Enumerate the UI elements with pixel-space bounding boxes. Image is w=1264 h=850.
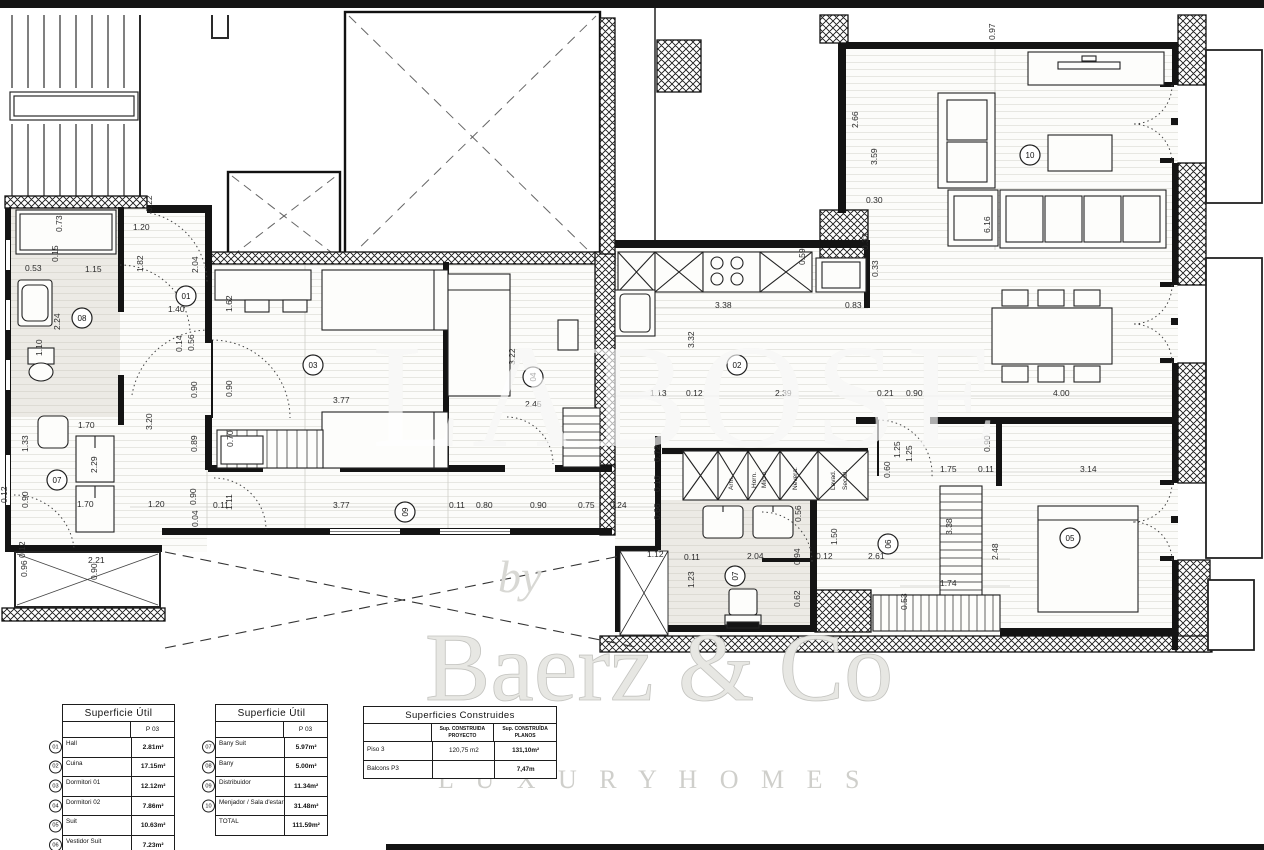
- dimension-label: 0.12: [17, 541, 27, 558]
- table-row: 08Bany5.00m²: [216, 758, 327, 778]
- dimension-label: 1.20: [133, 222, 150, 232]
- watermark-by: by: [498, 551, 542, 602]
- row-name: Distribuidor: [216, 777, 285, 796]
- row-name: Bany: [216, 758, 285, 777]
- dimension-label: 0.11: [449, 500, 465, 510]
- col-header-planos: Sup. CONSTRUÏDAPLANOS: [494, 724, 556, 741]
- room-number-05: 05: [1060, 528, 1080, 548]
- row-name: Hall: [63, 738, 132, 757]
- row-name: Dormitori 02: [63, 797, 132, 816]
- dimension-label: 0.15: [50, 245, 60, 262]
- room-number-label: 03: [309, 361, 318, 370]
- table-row: 07Bany Suit5.97m²: [216, 738, 327, 758]
- row-value: 7.23m²: [132, 836, 174, 850]
- row-name: Menjador / Sala d'estar: [216, 797, 285, 816]
- row-value-planos: 131,10m²: [495, 742, 556, 760]
- dimension-label: 0.66: [652, 503, 662, 520]
- table-row: TOTAL111.59m²: [216, 816, 327, 835]
- col-header-proyecto: Sup. CONSTRUIDAPROYECTO: [432, 724, 495, 741]
- row-value: 5.00m²: [285, 758, 327, 777]
- dimension-label: 0.53: [25, 263, 42, 273]
- table-row: Balcons P37,47m: [364, 761, 556, 779]
- room-number-01: 01: [176, 286, 196, 306]
- dimension-label: 0.89: [189, 435, 199, 452]
- floorplan-drawing: LABOSE: [0, 0, 1264, 850]
- table-row: 01Hall2.81m²: [63, 738, 174, 758]
- table-row: Piso 3120,75 m2131,10m²: [364, 742, 556, 761]
- row-name: Vestidor Suit: [63, 836, 132, 850]
- table-row: 03Dormitori 0112.12m²: [63, 777, 174, 797]
- table-row: 04Dormitori 027.86m²: [63, 797, 174, 817]
- room-number-label: 05: [1066, 534, 1075, 543]
- dimension-label: 0.83: [845, 300, 862, 310]
- dimension-label: 0.11: [684, 552, 700, 562]
- dimension-label: 3.77: [333, 500, 350, 510]
- row-value: 111.59m²: [285, 816, 327, 835]
- dimension-label: 3.14: [1080, 464, 1097, 474]
- dimension-label: 2.48: [990, 543, 1000, 560]
- dimension-label: 0.97: [987, 23, 997, 40]
- dimension-label: 3.59: [869, 148, 879, 165]
- shaft-voids: [228, 8, 655, 262]
- dimension-label: 0.94: [792, 548, 802, 565]
- dimension-label: 0.12: [816, 551, 833, 561]
- row-number-badge: 02: [49, 760, 62, 773]
- dimension-label: 6.16: [982, 216, 992, 233]
- dimension-label: 0.22: [144, 195, 154, 212]
- room-number-07: 07: [47, 470, 67, 490]
- row-number-badge: 03: [49, 780, 62, 793]
- row-name: TOTAL: [216, 816, 285, 835]
- dimension-label: 1.70: [77, 499, 94, 509]
- dimension-label: 1.11: [224, 494, 234, 510]
- room-number-06: 06: [878, 534, 898, 554]
- dimension-label: 0.30: [866, 195, 883, 205]
- dimension-label: 0.62: [792, 590, 802, 607]
- room-number-label: 09: [401, 507, 410, 516]
- row-number-badge: 01: [49, 741, 62, 754]
- row-name: Cuina: [63, 758, 132, 777]
- staircase: [10, 15, 228, 196]
- row-value: 7.86m²: [132, 797, 174, 816]
- dimension-label: 0.56: [793, 505, 803, 522]
- row-number-badge: 10: [202, 800, 215, 813]
- table-row: 02Cuina17.15m²: [63, 758, 174, 778]
- dimension-label: 1.12: [647, 549, 664, 559]
- room-number-08: 08: [72, 308, 92, 328]
- row-name: Balcons P3: [364, 761, 433, 779]
- table-title: Superficie Útil: [216, 705, 327, 722]
- table-row: 09Distribuidor11.34m²: [216, 777, 327, 797]
- dimension-label: 0.90: [224, 380, 234, 397]
- row-number-badge: 08: [202, 760, 215, 773]
- row-value-proyecto: [433, 761, 495, 779]
- row-name: Suit: [63, 816, 132, 835]
- row-value: 11.34m²: [285, 777, 327, 796]
- row-value: 10.63m²: [132, 816, 174, 835]
- dimension-label: 1.20: [148, 499, 165, 509]
- table-superficie-util-2: Superficie ÚtilP 0307Bany Suit5.97m²08Ba…: [215, 704, 328, 836]
- row-value: 31.48m²: [285, 797, 327, 816]
- row-value: 17.15m²: [132, 758, 174, 777]
- row-name: Piso 3: [364, 742, 433, 760]
- table-subheader: P 03: [63, 722, 174, 738]
- row-number-badge: 04: [49, 800, 62, 813]
- room-number-label: 07: [731, 571, 740, 580]
- room-number-label: 10: [1026, 151, 1035, 160]
- room-number-07: 07: [725, 566, 745, 586]
- room-number-label: 06: [884, 539, 893, 548]
- room-number-label: 08: [78, 314, 87, 323]
- row-value: 2.81m²: [132, 738, 174, 757]
- dimension-label: 0.75: [578, 500, 595, 510]
- room-number-label: 07: [53, 476, 62, 485]
- table-subheader: P 03: [216, 722, 327, 738]
- dimension-label: 0.12: [0, 486, 9, 503]
- dimension-label: 0.59: [797, 248, 807, 265]
- dimension-label: 0.90: [188, 488, 198, 505]
- dimension-label: 0.33: [860, 233, 870, 250]
- room-number-09: 09: [395, 502, 415, 522]
- dimension-label: 2.29: [89, 456, 99, 473]
- dimension-label: 3.20: [144, 413, 154, 430]
- floorplan-page: LABOSE: [0, 0, 1264, 850]
- table-title: Superficie Útil: [63, 705, 174, 722]
- table-title: Superficies Construides: [364, 707, 556, 724]
- dimension-label: 0.90: [89, 563, 99, 580]
- dimension-label: 3.77: [333, 395, 350, 405]
- dimension-label: 0.80: [476, 500, 493, 510]
- dimension-label: 1.74: [940, 578, 957, 588]
- room-number-03: 03: [303, 355, 323, 375]
- dimension-label: 0.73: [54, 215, 64, 232]
- row-name: Bany Suit: [216, 738, 285, 757]
- dimension-label: 1.62: [224, 295, 234, 312]
- dimension-label: 0.90: [530, 500, 547, 510]
- row-number-badge: 06: [49, 839, 62, 850]
- table-row: 05Suit10.63m²: [63, 816, 174, 836]
- dimension-label: 2.04: [747, 551, 764, 561]
- watermark-big-over: LABOSE: [372, 315, 1008, 479]
- table-superficie-util-1: Superficie ÚtilP 0301Hall2.81m²02Cuina17…: [62, 704, 175, 850]
- dimension-label: 2.04: [190, 256, 200, 273]
- dimension-label: 0.96: [19, 560, 29, 577]
- row-number-badge: 07: [202, 741, 215, 754]
- dimension-label: 0.56: [186, 334, 196, 351]
- dimension-label: 1.50: [829, 528, 839, 545]
- dimension-label: 1.82: [135, 255, 145, 272]
- dimension-label: 0.24: [610, 500, 627, 510]
- table-header: Sup. CONSTRUIDAPROYECTOSup. CONSTRUÏDAPL…: [364, 724, 556, 742]
- room-number-label: 01: [182, 292, 191, 301]
- dimension-label: 3.38: [944, 518, 954, 535]
- dimension-label: 0.33: [870, 260, 880, 277]
- dimension-label: 4.00: [1053, 388, 1070, 398]
- dimension-label: 1.10: [34, 339, 44, 356]
- dimension-label: 0.90: [189, 381, 199, 398]
- dimension-label: 0.14: [174, 335, 184, 352]
- row-number-badge: 09: [202, 780, 215, 793]
- table-row: 06Vestidor Suit7.23m²: [63, 836, 174, 850]
- dimension-label: 2.66: [850, 111, 860, 128]
- dimension-label: 2.24: [52, 313, 62, 330]
- dimension-label: 1.23: [686, 571, 696, 588]
- dimension-label: 1.15: [85, 264, 102, 274]
- room-number-10: 10: [1020, 145, 1040, 165]
- dimension-label: 3.38: [715, 300, 732, 310]
- table-superficies-construides: Superficies ConstruidesSup. CONSTRUIDAPR…: [363, 706, 557, 779]
- dimension-label: 0.04: [190, 510, 200, 527]
- dimension-label: 0.90: [20, 491, 30, 508]
- dining-set: [992, 290, 1112, 382]
- dimension-label: 1.70: [78, 420, 95, 430]
- row-value: 12.12m²: [132, 777, 174, 796]
- row-name: Dormitori 01: [63, 777, 132, 796]
- row-number-badge: 05: [49, 819, 62, 832]
- row-value: 5.97m²: [285, 738, 327, 757]
- row-value-proyecto: 120,75 m2: [433, 742, 495, 760]
- row-value-planos: 7,47m: [495, 761, 556, 779]
- dimension-label: 0.70: [225, 430, 235, 447]
- dimension-label: 1.33: [20, 435, 30, 452]
- dimension-label: 0.53: [899, 593, 909, 610]
- table-row: 10Menjador / Sala d'estar31.48m²: [216, 797, 327, 817]
